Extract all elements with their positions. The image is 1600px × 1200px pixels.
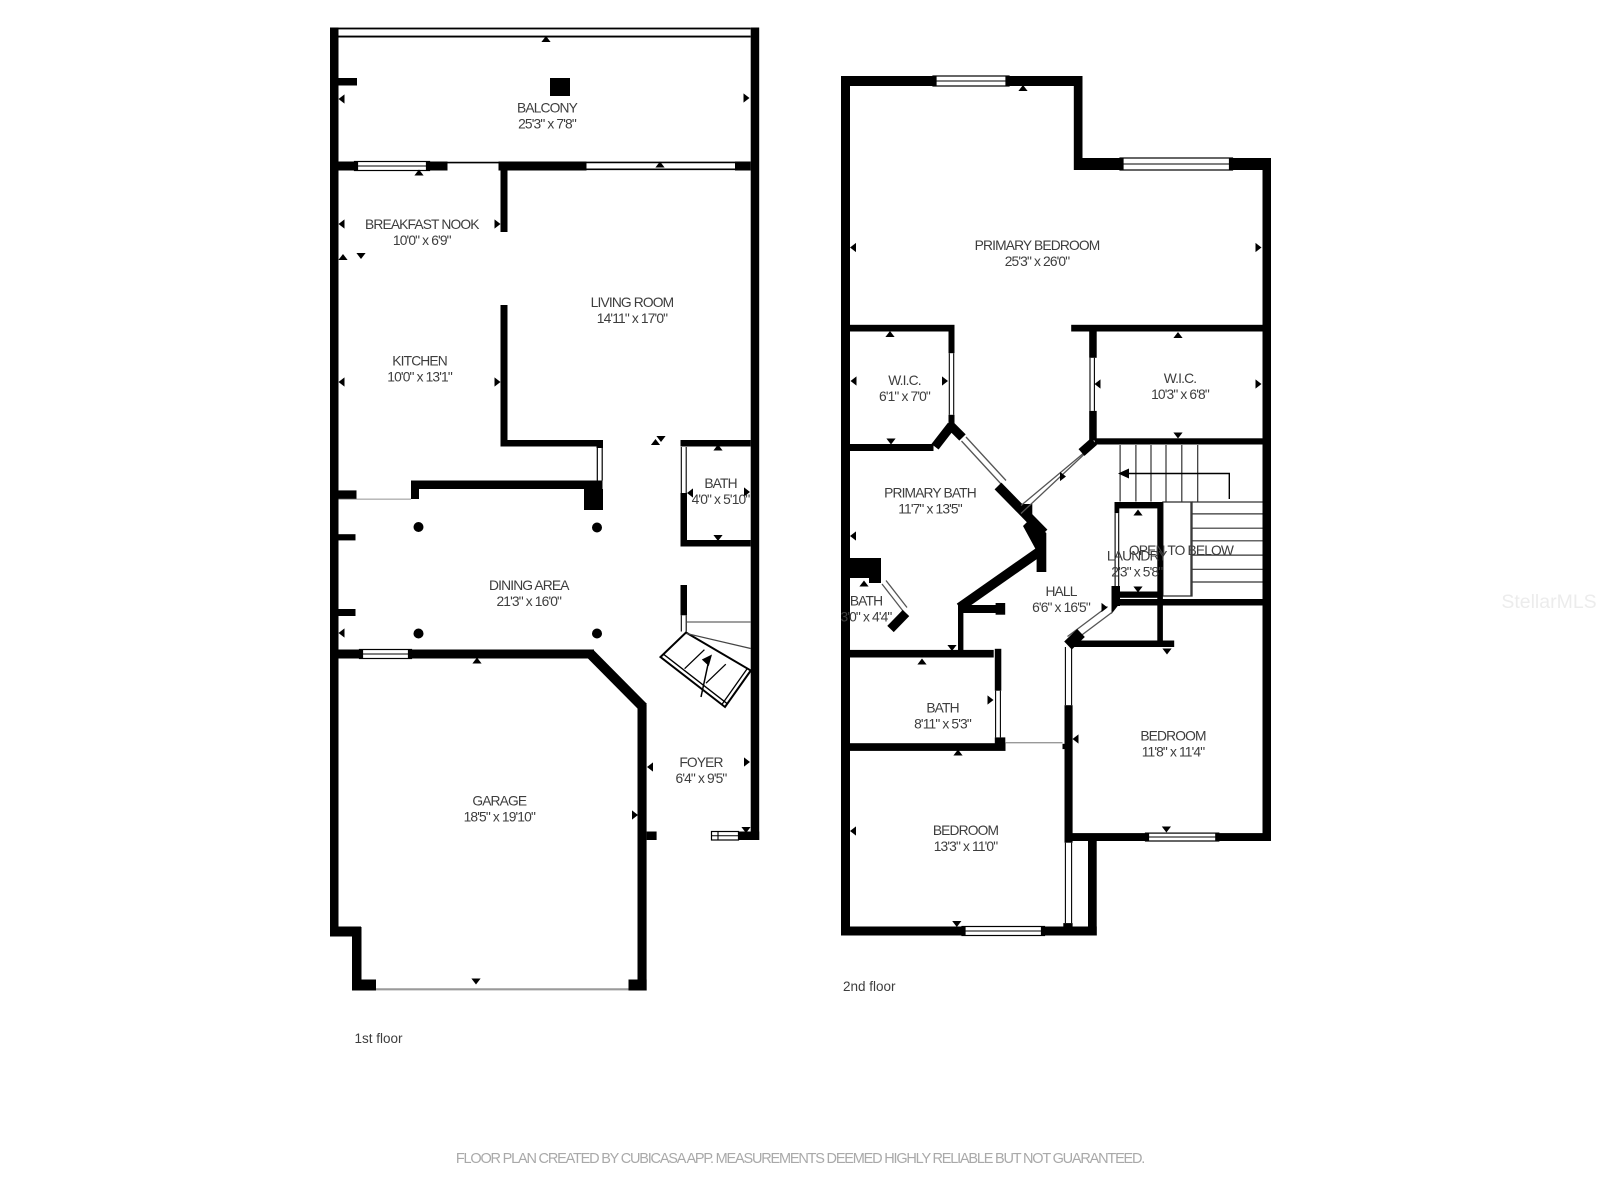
svg-text:18'5" x 19'10": 18'5" x 19'10"	[464, 810, 536, 825]
svg-text:W.I.C.: W.I.C.	[888, 373, 920, 388]
svg-text:2nd floor: 2nd floor	[843, 979, 896, 994]
svg-text:21'3" x 16'0": 21'3" x 16'0"	[496, 594, 562, 609]
svg-text:4'0" x 5'10": 4'0" x 5'10"	[692, 492, 751, 507]
svg-text:11'8" x 11'4": 11'8" x 11'4"	[1142, 745, 1206, 760]
svg-text:BALCONY: BALCONY	[517, 100, 578, 115]
svg-text:PRIMARY BEDROOM: PRIMARY BEDROOM	[975, 238, 1100, 253]
svg-text:FLOOR PLAN CREATED BY CUBICASA: FLOOR PLAN CREATED BY CUBICASA APP. MEAS…	[456, 1151, 1144, 1167]
svg-text:13'3" x 11'0": 13'3" x 11'0"	[934, 839, 999, 854]
svg-text:OPEN TO BELOW: OPEN TO BELOW	[1129, 543, 1234, 558]
svg-text:8'11" x 5'3": 8'11" x 5'3"	[914, 717, 972, 732]
svg-text:BATH: BATH	[926, 701, 958, 716]
svg-text:10'0" x 13'1": 10'0" x 13'1"	[387, 370, 453, 385]
svg-text:BATH: BATH	[704, 476, 736, 491]
svg-text:BEDROOM: BEDROOM	[933, 823, 999, 838]
svg-text:6'1" x 7'0": 6'1" x 7'0"	[879, 389, 931, 404]
svg-text:6'4" x 9'5": 6'4" x 9'5"	[676, 771, 728, 786]
svg-text:25'3" x 7'8": 25'3" x 7'8"	[518, 116, 577, 131]
svg-text:KITCHEN: KITCHEN	[392, 354, 447, 369]
svg-text:BREAKFAST NOOK: BREAKFAST NOOK	[365, 217, 480, 232]
svg-text:BATH: BATH	[850, 594, 882, 609]
svg-text:2'3" x 5'8": 2'3" x 5'8"	[1111, 565, 1163, 580]
svg-text:11'7" x 13'5": 11'7" x 13'5"	[898, 502, 963, 517]
svg-text:HALL: HALL	[1045, 584, 1077, 599]
svg-text:GARAGE: GARAGE	[472, 794, 527, 809]
svg-text:BEDROOM: BEDROOM	[1140, 729, 1206, 744]
svg-text:PRIMARY BATH: PRIMARY BATH	[884, 486, 976, 501]
svg-text:StellarMLS: StellarMLS	[1501, 591, 1596, 613]
svg-text:1st floor: 1st floor	[355, 1031, 404, 1046]
svg-text:10'3" x 6'8": 10'3" x 6'8"	[1151, 387, 1210, 402]
svg-text:10'0" x 6'9": 10'0" x 6'9"	[393, 233, 452, 248]
svg-text:W.I.C.: W.I.C.	[1164, 371, 1196, 386]
svg-text:FOYER: FOYER	[679, 755, 723, 770]
svg-text:LIVING ROOM: LIVING ROOM	[591, 295, 674, 310]
svg-text:6'6" x 16'5": 6'6" x 16'5"	[1032, 600, 1091, 615]
svg-text:DINING AREA: DINING AREA	[489, 578, 570, 593]
svg-text:14'11" x 17'0": 14'11" x 17'0"	[597, 311, 668, 326]
svg-text:3'0" x 4'4": 3'0" x 4'4"	[841, 610, 893, 625]
svg-text:25'3" x 26'0": 25'3" x 26'0"	[1005, 254, 1071, 269]
